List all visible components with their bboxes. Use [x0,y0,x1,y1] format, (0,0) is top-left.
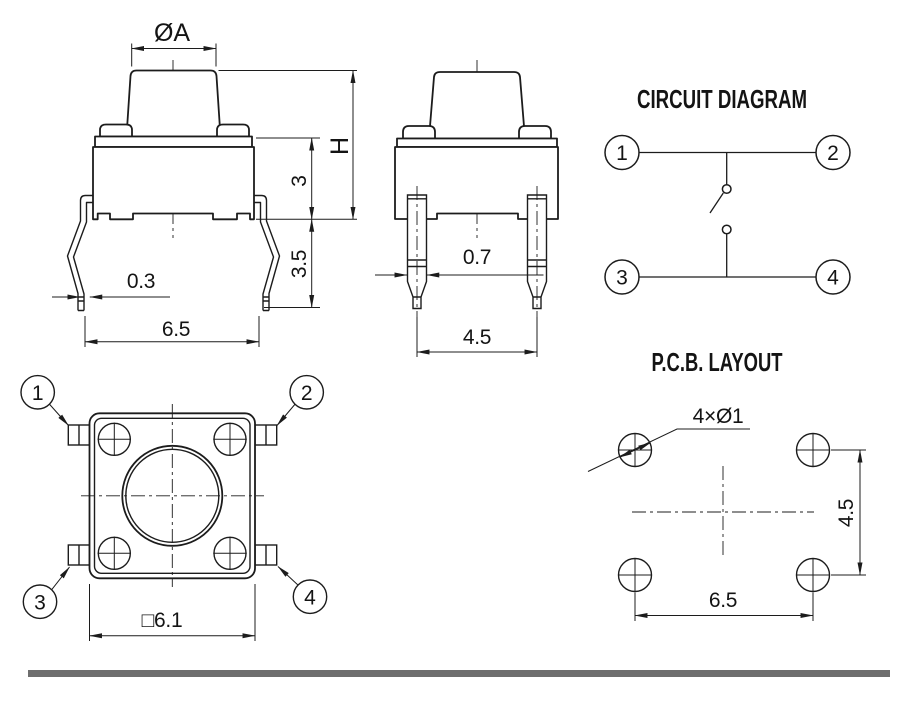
pcb-vertical-pitch-dim: 4.5 [831,450,866,575]
pcb-layout: P.C.B. LAYOUT 4×Ø1 4.5 [588,347,866,621]
pin-2-label: 2 [301,382,313,405]
front-left-leg [68,196,94,311]
pcb-holes [618,433,830,592]
front-view: ØA H 3 3.5 0.3 6.5 [52,19,357,347]
tact-switch-datasheet-drawing: ØA H 3 3.5 0.3 6.5 [0,0,916,707]
dim-total-height-label: H [326,137,354,155]
dim-leg-width-label: 0.3 [127,270,155,293]
dim-leg-length-label: 3.5 [288,250,311,278]
dim-leg-pitch-label: 6.5 [162,318,190,341]
side-flange [397,139,557,148]
front-left-bump [100,125,132,137]
terminal-3-label: 3 [616,267,628,290]
dim-pin-pitch-label: 4.5 [463,326,491,349]
dim-body-size-label: □6.1 [142,609,183,632]
side-stem [429,72,525,139]
front-stem [127,71,221,137]
front-flange [95,137,252,148]
dim-holes-label: 4×Ø1 [693,405,744,428]
circuit-contact-top [722,185,731,194]
divider-bar [28,670,890,677]
circuit-diagram: CIRCUIT DIAGRAM 1 2 3 4 [605,84,850,294]
top-view-dimension: □6.1 [90,584,256,641]
circuit-switch-lever [710,193,723,213]
dim-horizontal-pitch-label: 6.5 [709,589,737,612]
circuit-contact-bottom [722,225,731,234]
front-body [93,147,254,219]
side-view: 0.7 4.5 [375,60,558,357]
circuit-diagram-title: CIRCUIT DIAGRAM [637,84,807,114]
side-left-pin [408,186,427,322]
front-right-leg [254,196,280,311]
side-right-pin [528,186,547,322]
side-left-bump [403,126,435,139]
side-right-bump [519,126,551,139]
dim-cap-diameter-label: ØA [154,19,190,47]
dim-body-height-label: 3 [288,175,311,186]
pin-3-label: 3 [34,592,46,615]
circuit-wires [639,153,816,278]
top-view: 1 2 3 4 □6.1 [21,376,327,641]
front-right-bump [217,125,249,137]
side-dimensions: 0.7 4.5 [375,246,544,357]
pcb-centerlines [632,466,814,558]
dim-vertical-pitch-label: 4.5 [835,499,858,527]
pcb-layout-title: P.C.B. LAYOUT [652,347,783,377]
pin-4-label: 4 [304,587,316,610]
pin-1-label: 1 [32,382,44,405]
pcb-horizontal-pitch-dim: 6.5 [635,589,813,621]
terminal-1-label: 1 [616,142,628,165]
dim-pin-width-label: 0.7 [463,246,491,269]
terminal-4-label: 4 [827,267,839,290]
terminal-2-label: 2 [827,142,839,165]
pcb-hole-callout: 4×Ø1 [588,405,750,472]
